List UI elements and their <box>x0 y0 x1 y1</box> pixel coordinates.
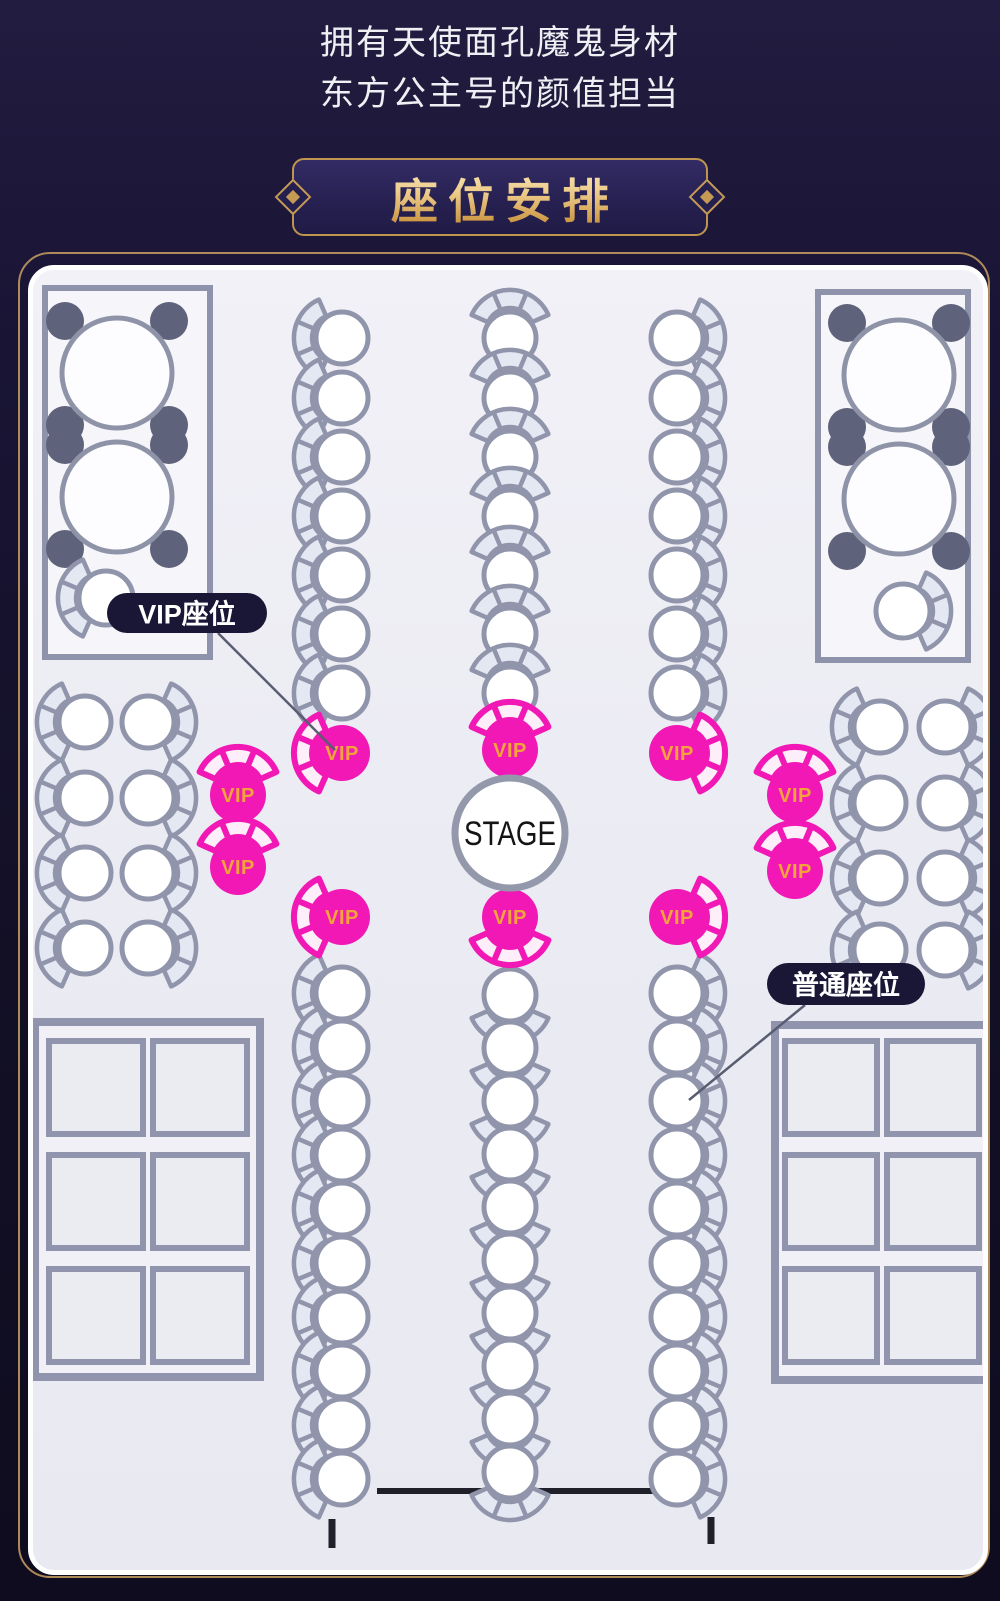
regular-seat <box>59 847 111 899</box>
regular-seat <box>651 1399 703 1451</box>
regular-seat <box>484 1446 536 1498</box>
regular-seat <box>316 1291 368 1343</box>
regular-seat <box>316 312 368 364</box>
regular-seat <box>316 967 368 1019</box>
regular-seat <box>651 967 703 1019</box>
regular-seat <box>651 1345 703 1397</box>
section-title-banner: 座位安排 <box>292 158 708 236</box>
vip-seat-text: VIP <box>660 907 694 929</box>
grid-table-cell <box>785 1155 877 1248</box>
regular-seat <box>854 701 906 753</box>
vip-seat-text: VIP <box>778 785 812 807</box>
regular-seat <box>484 1128 536 1180</box>
grid-table-cell <box>153 1155 247 1248</box>
regular-seat <box>854 852 906 904</box>
regular-seat <box>484 1181 536 1233</box>
regular-seat <box>651 431 703 483</box>
regular-seat <box>316 431 368 483</box>
regular-seat <box>651 1237 703 1289</box>
page-header: 拥有天使面孔魔鬼身材 东方公主号的颜值担当 <box>0 18 1000 120</box>
grid-table-cell <box>49 1041 143 1134</box>
regular-seat <box>484 1393 536 1445</box>
regular-seat <box>484 969 536 1021</box>
vip-seat-text: VIP <box>325 907 359 929</box>
grid-table-cell <box>785 1041 877 1134</box>
seating-map-card: VIPVIPVIPVIPVIPVIPVIPVIPVIPVIPSTAGEVIP座位… <box>28 265 988 1575</box>
regular-seat <box>316 667 368 719</box>
vip-seat-text: VIP <box>660 743 694 765</box>
regular-seat <box>919 924 971 976</box>
grid-table-cell <box>887 1155 979 1248</box>
grid-table-cell <box>887 1041 979 1134</box>
regular-seat <box>316 490 368 542</box>
regular-seat <box>651 1075 703 1127</box>
regular-seat <box>316 1453 368 1505</box>
regular-seat <box>316 1237 368 1289</box>
regular-seat <box>919 777 971 829</box>
regular-seat <box>651 372 703 424</box>
regular-seat <box>484 1340 536 1392</box>
vip-seat-text: VIP <box>221 857 255 879</box>
regular-seat <box>919 852 971 904</box>
regular-seat <box>316 1183 368 1235</box>
regular-seat <box>122 922 174 974</box>
regular-seat <box>651 1291 703 1343</box>
regular-seat <box>316 1075 368 1127</box>
regular-seat <box>651 312 703 364</box>
round-table <box>844 320 954 430</box>
stage-label: STAGE <box>464 815 556 853</box>
section-title: 座位安排 <box>381 163 619 232</box>
regular-seat <box>316 1399 368 1451</box>
regular-seat <box>651 1021 703 1073</box>
regular-seat <box>484 1022 536 1074</box>
regular-seat <box>484 1075 536 1127</box>
regular-seat <box>122 772 174 824</box>
regular-seat <box>651 1453 703 1505</box>
regular-seat <box>919 701 971 753</box>
vip-label-text: VIP座位 <box>138 598 236 629</box>
diamond-ornament-right-icon <box>689 179 726 216</box>
regular-seat <box>316 1129 368 1181</box>
tagline-line1: 拥有天使面孔魔鬼身材 <box>0 18 1000 69</box>
regular-seat <box>651 1183 703 1235</box>
regular-label-text: 普通座位 <box>792 969 900 1000</box>
regular-seat <box>316 1345 368 1397</box>
regular-seat <box>484 1287 536 1339</box>
regular-seat <box>651 490 703 542</box>
regular-seat <box>59 922 111 974</box>
regular-seat <box>59 772 111 824</box>
regular-seat <box>59 696 111 748</box>
regular-seat <box>876 584 930 638</box>
regular-seat <box>651 549 703 601</box>
grid-table-cell <box>785 1269 877 1362</box>
regular-seat <box>651 1129 703 1181</box>
round-table <box>844 444 954 554</box>
round-table <box>62 442 172 552</box>
round-table <box>62 318 172 428</box>
vip-seat-text: VIP <box>778 861 812 883</box>
grid-table-cell <box>153 1041 247 1134</box>
grid-table-cell <box>49 1155 143 1248</box>
regular-seat <box>316 1021 368 1073</box>
regular-seat <box>316 372 368 424</box>
grid-table-cell <box>153 1269 247 1362</box>
regular-seat <box>484 1234 536 1286</box>
regular-seat <box>651 667 703 719</box>
poster-page: { "header": { "line1": "拥有天使面孔魔鬼身材", "li… <box>0 0 1000 1601</box>
vip-seat-text: VIP <box>493 740 527 762</box>
regular-seat <box>122 696 174 748</box>
regular-seat <box>316 608 368 660</box>
regular-seat <box>854 777 906 829</box>
grid-table-cell <box>49 1269 143 1362</box>
seat-map: VIPVIPVIPVIPVIPVIPVIPVIPVIPVIPSTAGEVIP座位… <box>33 270 983 1570</box>
vip-seat-text: VIP <box>493 907 527 929</box>
regular-seat <box>651 608 703 660</box>
diamond-ornament-left-icon <box>275 179 312 216</box>
tagline-line2: 东方公主号的颜值担当 <box>0 69 1000 120</box>
regular-seat <box>316 549 368 601</box>
regular-seat <box>122 847 174 899</box>
vip-seat-text: VIP <box>221 785 255 807</box>
grid-table-cell <box>887 1269 979 1362</box>
